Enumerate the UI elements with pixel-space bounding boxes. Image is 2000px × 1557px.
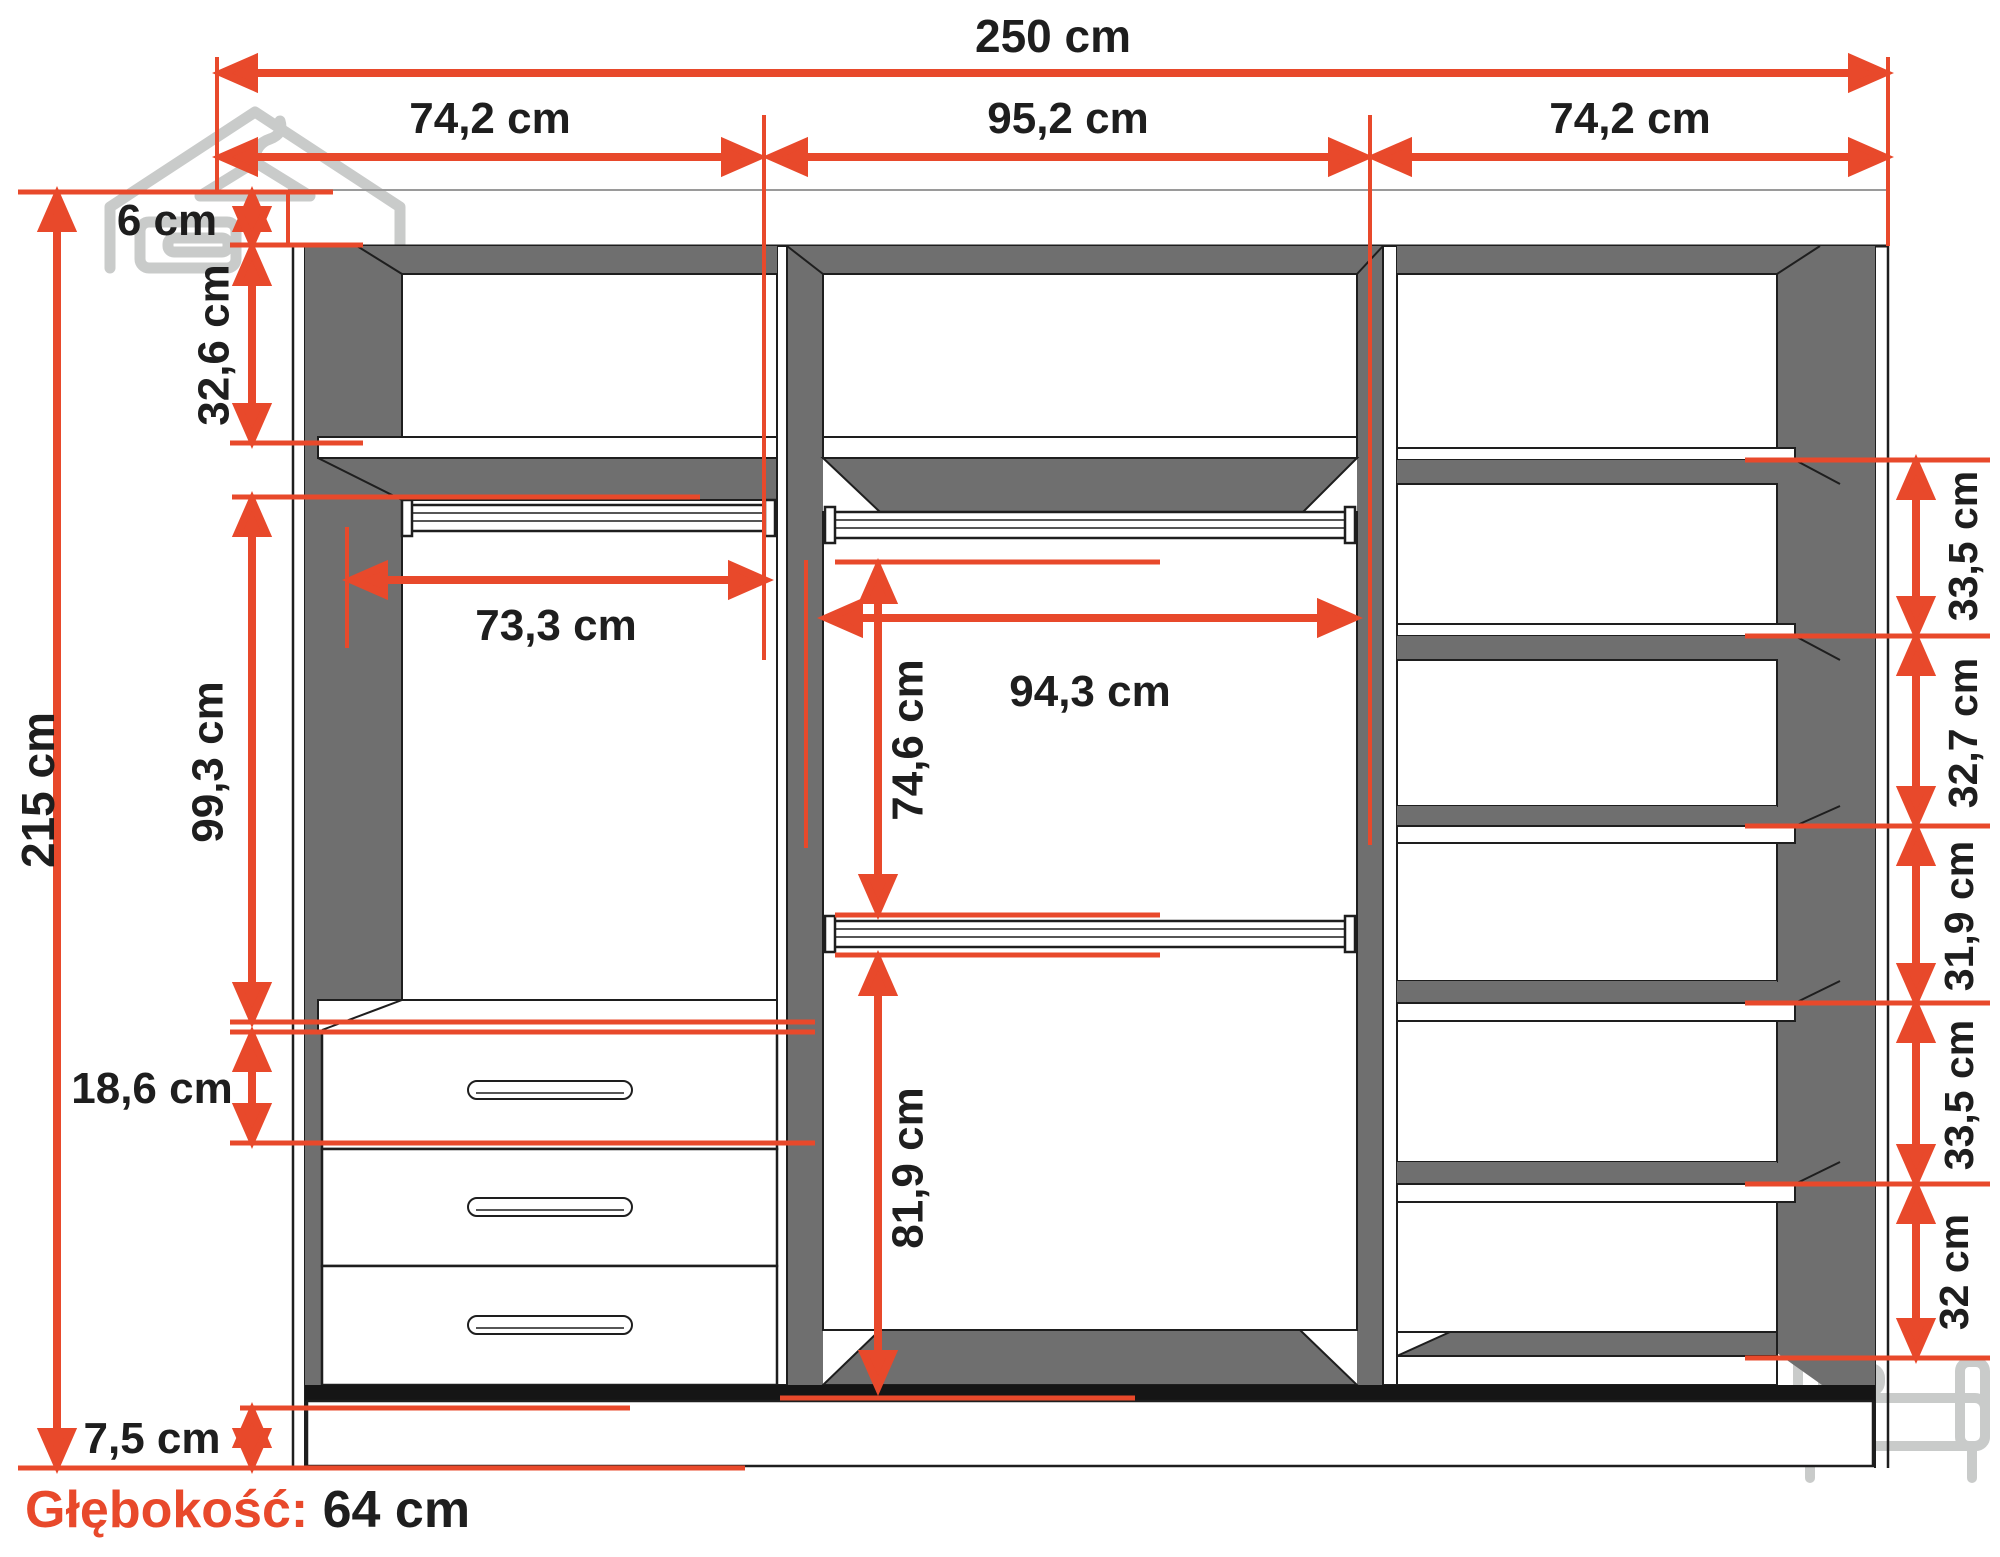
dim-shelf-4-arrow (1902, 1007, 1930, 1180)
dim-middle-lower-height-label: 81,9 cm (884, 1087, 933, 1248)
right-wall (1777, 246, 1875, 1385)
right-section-top-band (1397, 246, 1777, 274)
dim-section-left-label: 74,2 cm (409, 94, 570, 143)
dim-total-height-label: 215 cm (12, 712, 64, 868)
right-shelf-column (1397, 448, 1840, 1385)
middle-floor-panel (823, 1330, 1357, 1385)
middle-hanging-rail-lower (825, 916, 1355, 952)
dim-section-middle-label: 95,2 cm (987, 94, 1148, 143)
drawer-3 (322, 1266, 777, 1385)
dim-drawer-label: 18,6 cm (71, 1064, 232, 1113)
middle-top-shelf (823, 437, 1357, 458)
left-top-shelf (318, 437, 777, 458)
dim-plinth-label: 7,5 cm (84, 1414, 221, 1463)
left-hanging-area (402, 500, 777, 1000)
dim-left-inner-width-label: 73,3 cm (475, 601, 636, 650)
dim-section-right-label: 74,2 cm (1549, 94, 1710, 143)
depth-label: Głębokość: (25, 1481, 308, 1539)
dim-plinth-arrow (238, 1412, 266, 1464)
dim-top-panel-arrow (238, 196, 266, 242)
dim-hanging-label: 99,3 cm (184, 681, 233, 842)
depth-value: 64 cm (323, 1481, 470, 1539)
middle-top-cell (823, 274, 1357, 437)
dim-shelf-5-label: 32 cm (1931, 1214, 1977, 1330)
diagram-svg: 250 cm 74,2 cm 95,2 cm 74,2 cm 6 cm 32,6… (0, 0, 2000, 1557)
dim-total-width-arrow (222, 59, 1884, 87)
dim-middle-inner-width-label: 94,3 cm (1009, 667, 1170, 716)
drawer-2 (322, 1149, 777, 1266)
right-top-cell (1397, 274, 1777, 448)
dim-shelf-4-label: 33,5 cm (1936, 1020, 1982, 1170)
divider-1-front (777, 246, 787, 1385)
dim-section-middle-arrow (772, 143, 1364, 171)
divider-2-front (1383, 246, 1397, 1385)
dim-hanging-arrow (238, 501, 266, 1018)
dim-shelf-2-arrow (1902, 640, 1930, 822)
drawer-1 (322, 1032, 777, 1149)
drawer-3-handle (468, 1316, 632, 1334)
dim-middle-upper-height-label: 74,6 cm (884, 659, 933, 820)
dim-drawer-arrow (238, 1036, 266, 1139)
left-hanging-rail (402, 500, 775, 536)
middle-hanging-rail-upper (825, 507, 1355, 543)
dim-top-panel-label: 6 cm (117, 196, 217, 245)
dim-shelf-1-label: 33,5 cm (1940, 471, 1986, 621)
left-top-cell (402, 274, 777, 437)
left-section-top-band (402, 246, 777, 274)
dim-shelf-2-label: 32,7 cm (1940, 658, 1986, 808)
wardrobe-dimension-diagram: 250 cm 74,2 cm 95,2 cm 74,2 cm 6 cm 32,6… (0, 0, 2000, 1557)
dim-shelf-3-arrow (1902, 830, 1930, 999)
dim-shelf-1-arrow (1902, 464, 1930, 632)
dim-upper-section-label: 32,6 cm (190, 264, 239, 425)
middle-top-shelf-underside (823, 458, 1357, 512)
dim-upper-section-arrow (238, 250, 266, 439)
dim-shelf-3-label: 31,9 cm (1936, 841, 1982, 991)
dim-total-width-label: 250 cm (975, 10, 1131, 62)
middle-section-top-band (823, 246, 1357, 274)
plinth (307, 1401, 1873, 1466)
dim-shelf-5-arrow (1902, 1188, 1930, 1354)
dim-section-right-arrow (1376, 143, 1884, 171)
drawer-2-handle (468, 1198, 632, 1216)
depth-caption: Głębokość: 64 cm (25, 1480, 470, 1540)
wardrobe-structure (288, 190, 1888, 1468)
drawer-1-handle (468, 1081, 632, 1099)
